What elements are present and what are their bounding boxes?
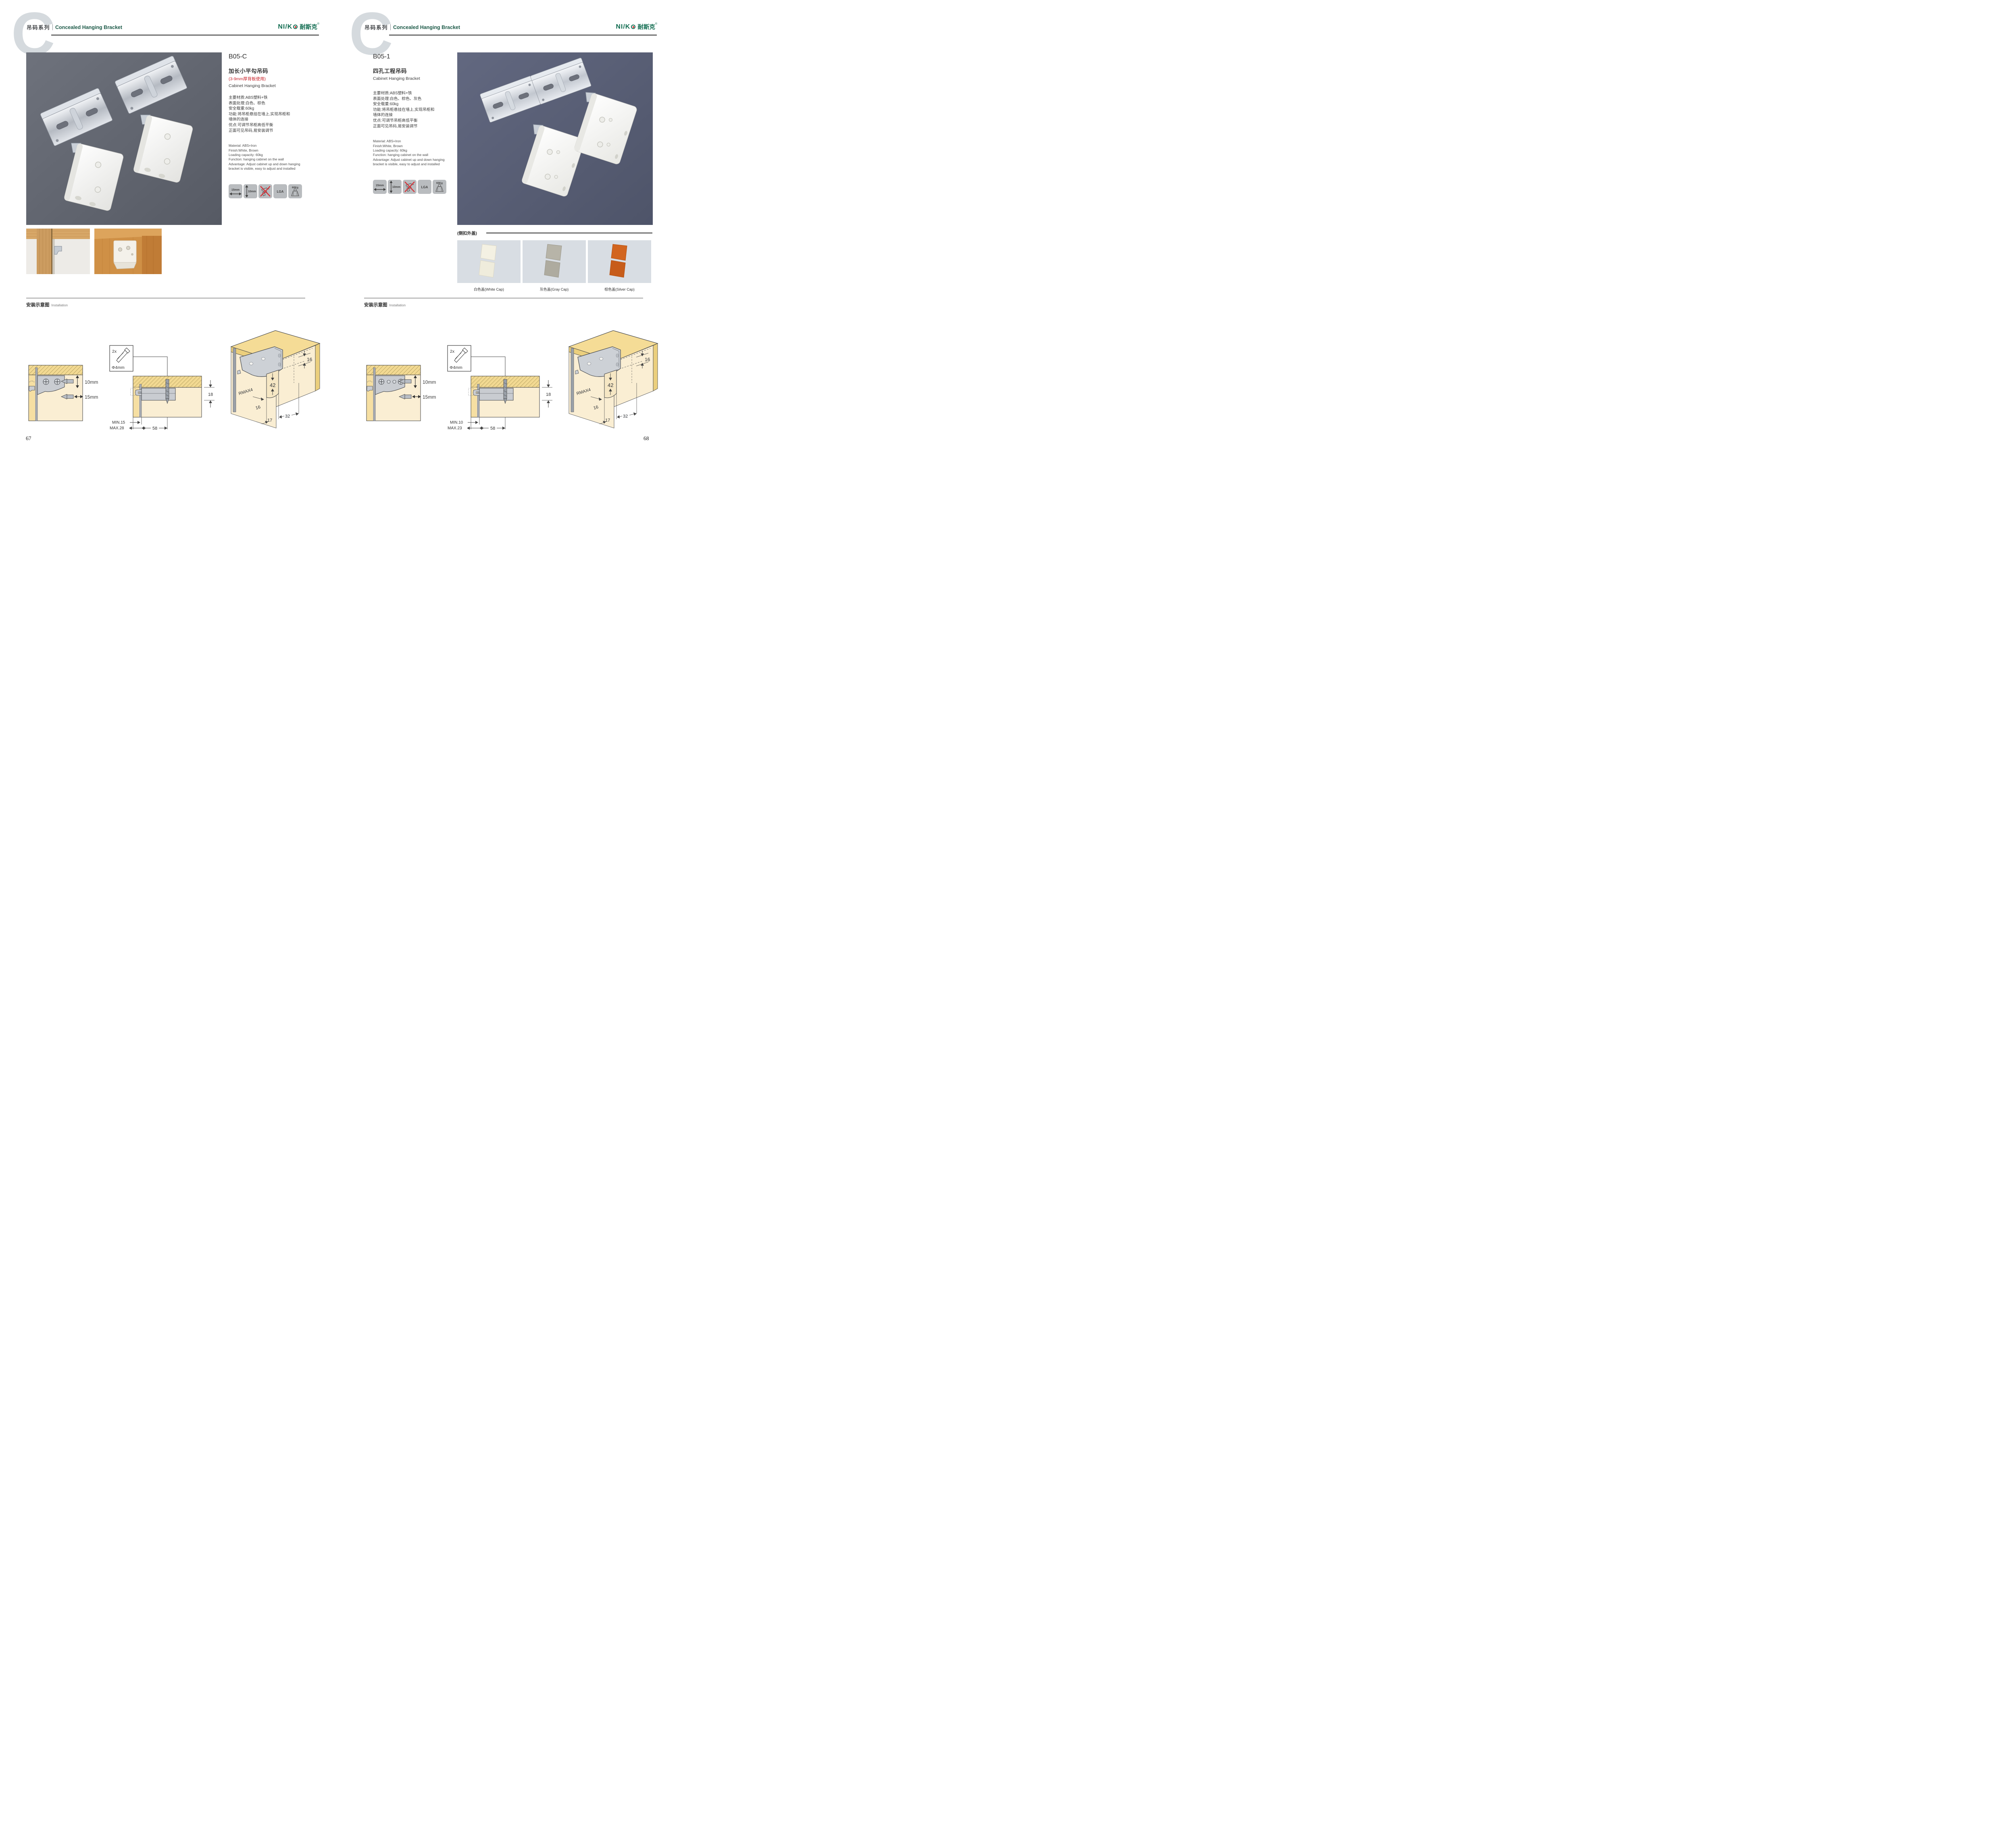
page-number: 68 bbox=[644, 435, 649, 442]
svg-text:42: 42 bbox=[608, 382, 613, 388]
svg-text:2x: 2x bbox=[450, 349, 455, 354]
spec-line: Function: hanging cabinet on the wall bbox=[373, 153, 462, 157]
svg-text:17: 17 bbox=[605, 418, 610, 423]
logo-o-icon bbox=[631, 25, 635, 29]
spec-line: Loading capacity: 60kg bbox=[373, 148, 462, 153]
badge-load-icon: 60Kg bbox=[288, 184, 302, 198]
spec-line: 主要材质:ABS塑料+铁 bbox=[373, 91, 462, 96]
svg-text:32: 32 bbox=[623, 414, 628, 419]
spec-line: 正面可见吊码,易安装调节 bbox=[373, 124, 462, 129]
badge-width-icon: 15mm bbox=[373, 180, 387, 194]
svg-text:10mm: 10mm bbox=[392, 186, 400, 189]
registered-mark: ® bbox=[655, 23, 657, 25]
svg-text:32: 32 bbox=[285, 414, 290, 419]
spec-line: 表面处理:白色、棕色 bbox=[229, 101, 322, 106]
cap-caption: 棕色盖(Silver Cap) bbox=[588, 287, 651, 292]
diagram-3d-corner: 16 42 RMAX4 16 17 32 bbox=[566, 322, 660, 439]
logo-o-icon bbox=[293, 25, 298, 29]
badge-lga: LGA bbox=[273, 184, 287, 198]
product-name-en: Cabinet Hanging Bracket bbox=[373, 76, 462, 81]
spec-line: 安全载重:60kg bbox=[373, 102, 462, 107]
installation-title-en: Installation bbox=[52, 303, 68, 307]
spec-line: Advantage: Adjust cabinet up and down ha… bbox=[229, 162, 322, 166]
svg-text:17: 17 bbox=[267, 418, 272, 423]
specs-cn: 主要材质:ABS塑料+铁 表面处理:白色、棕色、灰色 安全载重:60kg 功能:… bbox=[373, 91, 462, 129]
installation-title-cn: 安装示意图 bbox=[364, 303, 387, 308]
svg-text:LGA: LGA bbox=[277, 190, 284, 193]
badge-width-icon: 15mm bbox=[229, 184, 242, 198]
svg-text:LGA: LGA bbox=[421, 185, 428, 189]
caps-section-label: (侧扣外盖) bbox=[457, 230, 477, 236]
product-note: (3-9mm厚背板使用) bbox=[229, 76, 322, 82]
svg-text:10mm: 10mm bbox=[85, 379, 98, 385]
installation-title: 安装示意图Installation bbox=[26, 301, 68, 308]
cap-caption: 灰色盖(Gray Cap) bbox=[523, 287, 586, 292]
cap-tile-brown bbox=[588, 240, 651, 283]
diagram-back-section: 2x Φ4mm bbox=[109, 345, 224, 431]
diagram-side-section: 10mm 15mm bbox=[28, 363, 107, 423]
spec-line: Material: ABS+Iron bbox=[229, 144, 322, 148]
spec-line: 墙体的连接 bbox=[373, 112, 462, 118]
svg-text:15mm: 15mm bbox=[376, 184, 384, 187]
spec-line: Material: ABS+Iron bbox=[373, 139, 462, 144]
catalog-page-68: C 吊码系列 Concealed Hanging Bracket NI/K 耐斯… bbox=[338, 0, 676, 462]
spec-line: 墙体的连接 bbox=[229, 117, 322, 123]
series-header: 吊码系列 Concealed Hanging Bracket bbox=[27, 23, 122, 31]
badge-no-drill-icon bbox=[403, 180, 417, 194]
page-number: 67 bbox=[26, 435, 31, 442]
spec-line: Loading capacity: 60kg bbox=[229, 153, 322, 157]
spec-line: Finish:White, Brown bbox=[229, 148, 322, 153]
svg-text:58: 58 bbox=[152, 426, 157, 431]
brand-logo-cn: 耐斯克 bbox=[637, 23, 655, 31]
diagram-3d-corner: 16 42 RMAX4 16 17 32 bbox=[228, 322, 323, 439]
diagram-back-section: 2x Φ4mm bbox=[447, 345, 562, 431]
spec-line: Function: hanging cabinet on the wall bbox=[229, 157, 322, 162]
brand-logo-cn: 耐斯克 bbox=[300, 23, 317, 31]
installation-title-en: Installation bbox=[389, 303, 406, 307]
specs-en: Material: ABS+Iron Finish:White, Brown L… bbox=[229, 144, 322, 171]
svg-text:MAX.23: MAX.23 bbox=[448, 426, 462, 431]
product-info: B05-1 四孔工程吊码 Cabinet Hanging Bracket 主要材… bbox=[373, 53, 462, 194]
cap-tile-white bbox=[457, 240, 521, 283]
svg-text:15mm: 15mm bbox=[231, 189, 240, 191]
installation-divider bbox=[364, 298, 643, 298]
svg-text:MIN.10: MIN.10 bbox=[450, 420, 463, 425]
product-photo-main bbox=[457, 52, 653, 225]
brand-logo-latin: NI/K bbox=[616, 23, 630, 31]
series-title-en: Concealed Hanging Bracket bbox=[55, 25, 122, 30]
series-title-cn: 吊码系列 bbox=[27, 23, 50, 31]
series-title-cn: 吊码系列 bbox=[364, 23, 388, 31]
series-header: 吊码系列 Concealed Hanging Bracket bbox=[364, 23, 460, 31]
product-code: B05-1 bbox=[373, 53, 462, 60]
installation-title-cn: 安装示意图 bbox=[26, 303, 50, 308]
spec-line: 优点:可调节吊柜高低平衡 bbox=[373, 118, 462, 124]
product-info: B05-C 加长小平勾吊码 (3-9mm厚背板使用) Cabinet Hangi… bbox=[229, 53, 322, 198]
product-code: B05-C bbox=[229, 53, 322, 60]
spec-line: 安全载重:60kg bbox=[229, 106, 322, 112]
cap-tile-gray bbox=[523, 240, 586, 283]
caps-captions: 白色盖(White Cap) 灰色盖(Gray Cap) 棕色盖(Silver … bbox=[457, 287, 651, 292]
svg-text:Φ4mm: Φ4mm bbox=[450, 365, 462, 370]
series-divider bbox=[52, 24, 53, 30]
header-rule bbox=[389, 35, 657, 35]
application-photo-hook bbox=[26, 229, 90, 274]
brand-logo: NI/K 耐斯克 ® bbox=[278, 23, 319, 31]
installation-title: 安装示意图Installation bbox=[364, 301, 406, 308]
product-name-cn: 四孔工程吊码 bbox=[373, 67, 462, 75]
spec-line: Finish:White, Brown bbox=[373, 144, 462, 148]
diagram-side-section: 10mm 15mm bbox=[366, 363, 445, 423]
svg-text:42: 42 bbox=[270, 382, 275, 388]
svg-text:Φ4mm: Φ4mm bbox=[112, 365, 125, 370]
badge-load-icon: 60Kg bbox=[433, 180, 446, 194]
badge-no-drill-icon bbox=[258, 184, 272, 198]
catalog-spread: C 吊码系列 Concealed Hanging Bracket NI/K 耐斯… bbox=[0, 0, 676, 462]
spec-line: 正面可见吊码,易安装调节 bbox=[229, 128, 322, 134]
application-photo-bracket bbox=[94, 229, 162, 274]
svg-text:16: 16 bbox=[307, 357, 312, 362]
spec-line: bracket is visible, easy to adjust and i… bbox=[229, 166, 322, 171]
svg-text:10mm: 10mm bbox=[248, 190, 256, 193]
badge-lga: LGA bbox=[418, 180, 431, 194]
registered-mark: ® bbox=[317, 23, 319, 25]
header-rule bbox=[51, 35, 319, 35]
svg-text:18: 18 bbox=[546, 392, 551, 397]
installation-diagrams: 10mm 15mm 2x bbox=[26, 322, 325, 443]
feature-badges: 15mm 10mm bbox=[373, 180, 462, 194]
spec-line: 功能:将吊柜悬挂在墙上,实现吊柜和 bbox=[373, 107, 462, 113]
caps-row bbox=[457, 240, 651, 283]
svg-text:18: 18 bbox=[208, 392, 213, 397]
svg-text:MAX.28: MAX.28 bbox=[110, 426, 124, 431]
series-divider bbox=[390, 24, 391, 30]
svg-text:58: 58 bbox=[490, 426, 495, 431]
svg-text:15mm: 15mm bbox=[423, 394, 436, 400]
svg-text:MIN.15: MIN.15 bbox=[112, 420, 125, 425]
installation-divider bbox=[26, 298, 305, 298]
catalog-page-67: C 吊码系列 Concealed Hanging Bracket NI/K 耐斯… bbox=[0, 0, 338, 462]
feature-badges: 15mm 10mm bbox=[229, 184, 322, 198]
installation-diagrams: 10mm 15mm 2x bbox=[364, 322, 662, 443]
caps-section-rule bbox=[486, 233, 652, 233]
specs-en: Material: ABS+Iron Finish:White, Brown L… bbox=[373, 139, 462, 166]
spec-line: 主要材质:ABS塑料+铁 bbox=[229, 95, 322, 101]
svg-text:15mm: 15mm bbox=[85, 394, 98, 400]
brand-logo-latin: NI/K bbox=[278, 23, 292, 31]
product-name-cn: 加长小平勾吊码 bbox=[229, 67, 322, 75]
cap-caption: 白色盖(White Cap) bbox=[457, 287, 521, 292]
spec-line: 功能:将吊柜悬挂在墙上,实现吊柜和 bbox=[229, 112, 322, 117]
badge-height-icon: 10mm bbox=[388, 180, 402, 194]
badge-height-icon: 10mm bbox=[244, 184, 257, 198]
brand-logo: NI/K 耐斯克 ® bbox=[616, 23, 657, 31]
svg-text:10mm: 10mm bbox=[423, 379, 436, 385]
spec-line: Advantage: Adjust cabinet up and down ha… bbox=[373, 158, 462, 162]
spec-line: bracket is visible, easy to adjust and i… bbox=[373, 162, 462, 166]
svg-text:2x: 2x bbox=[112, 349, 117, 354]
svg-text:16: 16 bbox=[645, 357, 650, 362]
product-photo-main bbox=[26, 52, 222, 225]
spec-line: 优点:可调节吊柜高低平衡 bbox=[229, 123, 322, 128]
series-title-en: Concealed Hanging Bracket bbox=[393, 25, 460, 30]
specs-cn: 主要材质:ABS塑料+铁 表面处理:白色、棕色 安全载重:60kg 功能:将吊柜… bbox=[229, 95, 322, 133]
product-name-en: Cabinet Hanging Bracket bbox=[229, 83, 322, 88]
spec-line: 表面处理:白色、棕色、灰色 bbox=[373, 96, 462, 102]
